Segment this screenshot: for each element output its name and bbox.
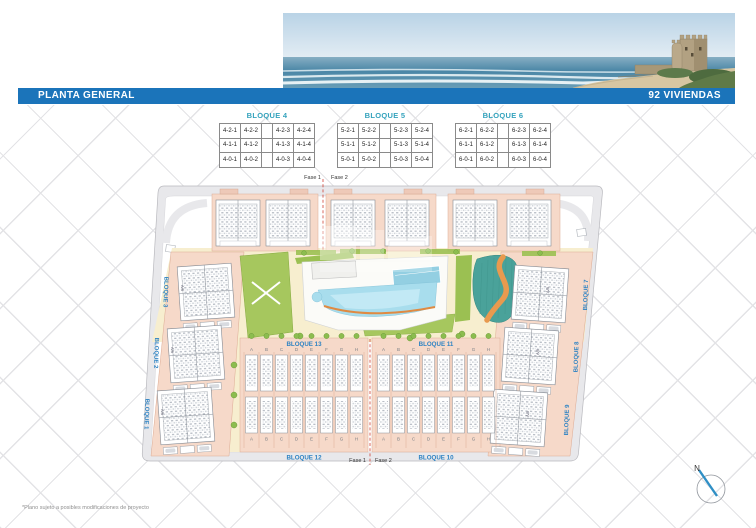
unit-letter: A	[382, 347, 385, 352]
cluster-unit-label: A/B	[170, 347, 174, 354]
unit-letter: B	[265, 347, 268, 352]
unit-letter: H	[487, 437, 490, 442]
road-label-bloque-2: BLOQUE 2	[152, 338, 159, 370]
cluster-unit-label: A/B	[180, 285, 184, 292]
utility-box	[577, 228, 587, 236]
phase-label-bottom-2: Fase 2	[375, 458, 392, 464]
unit-letter: F	[325, 437, 328, 442]
parking-stall	[508, 447, 522, 455]
unit-letter: G	[472, 437, 476, 442]
unit-letter: H	[355, 437, 358, 442]
cluster-unit-label: A/B	[160, 409, 164, 416]
parking-stall	[180, 446, 194, 454]
unit-letter: E	[442, 437, 445, 442]
unit-letter: G	[340, 347, 344, 352]
spa-pool	[312, 292, 322, 302]
unit-letter: F	[325, 347, 328, 352]
unit-letter: E	[310, 437, 313, 442]
group-label-bloque-11: BLOQUE 11	[419, 341, 454, 348]
cluster-unit-label: A/B	[546, 286, 550, 293]
unit-letter: F	[457, 437, 460, 442]
road-label-bloque-9: BLOQUE 9	[564, 404, 571, 436]
unit-letter: B	[397, 437, 400, 442]
compass: N	[694, 464, 725, 503]
top-apartment-plots	[212, 189, 560, 251]
compass-north-label: N	[694, 464, 700, 473]
cluster-unit-label: A/B	[526, 410, 530, 417]
footnote: *Plano sujeto a posibles modificaciones …	[22, 505, 149, 511]
unit-letter: A	[250, 347, 253, 352]
unit-letter: G	[472, 347, 476, 352]
unit-letter: G	[340, 437, 344, 442]
unit-letter: H	[487, 347, 490, 352]
unit-letter: B	[397, 347, 400, 352]
unit-letter: A	[382, 437, 385, 442]
road-label-bloque-1: BLOQUE 1	[142, 399, 149, 431]
phase-label-top-2: Fase 2	[331, 175, 348, 181]
page: PLANTA GENERAL 92 VIVIENDAS BLOQUE 44-2-…	[0, 0, 756, 528]
cluster-unit-label: A/B	[536, 348, 540, 355]
group-label-bloque-13: BLOQUE 13	[286, 341, 322, 348]
group-label-bloque-12: BLOQUE 12	[286, 455, 322, 462]
phase-label-bottom-1: Fase 1	[349, 458, 366, 464]
road-label-bloque-8: BLOQUE 8	[573, 341, 580, 373]
group-label-bloque-10: BLOQUE 10	[418, 455, 454, 462]
unit-letter: A	[250, 437, 253, 442]
road-label-bloque-3: BLOQUE 3	[161, 277, 168, 309]
site-plan: AABBCCDDEEFFGGHHAABBCCDDEEFFGGHH BLOQUE …	[0, 0, 756, 528]
unit-letter: F	[457, 347, 460, 352]
unit-letter: H	[355, 347, 358, 352]
phase-label-top-1: Fase 1	[304, 175, 321, 181]
unit-letter: B	[265, 437, 268, 442]
road-label-bloque-7: BLOQUE 7	[583, 279, 590, 311]
